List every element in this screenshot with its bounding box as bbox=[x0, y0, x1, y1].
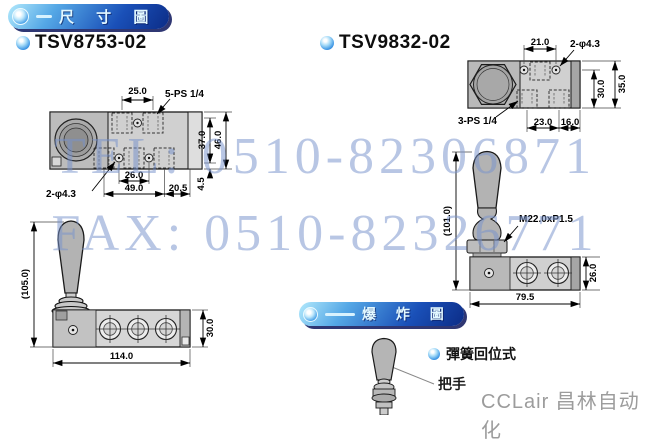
dim-79-5: 79.5 bbox=[516, 292, 535, 303]
handle-knob bbox=[372, 339, 396, 381]
spring-return-label: 彈簧回位式 bbox=[446, 344, 516, 364]
dim-30-right: 30.0 bbox=[596, 80, 607, 99]
tsv9832-side-view: (101.0) M22.0xP1.5 26.0 79.5 bbox=[442, 152, 600, 309]
technical-drawings-canvas: 25.0 5-PS 1/4 37.0 46.0 4.5 26.0 49.0 20… bbox=[0, 0, 650, 415]
badge-circle-icon bbox=[303, 307, 318, 322]
model-name-right: TSV9832-02 bbox=[339, 32, 451, 54]
dim-105: (105.0) bbox=[20, 269, 31, 299]
dim-35: 35.0 bbox=[617, 75, 628, 94]
dimension-section-header: 尺 寸 圖 bbox=[8, 4, 169, 29]
dim-20-5: 20.5 bbox=[169, 183, 188, 194]
side-ports bbox=[96, 315, 180, 343]
label-3ps: 3-PS 1/4 bbox=[458, 116, 497, 127]
lever-knob-right bbox=[473, 152, 501, 209]
model-title-tsv9832: TSV9832-02 bbox=[320, 32, 451, 54]
badge-dash-icon bbox=[36, 15, 52, 18]
handle-part-label: 把手 bbox=[438, 374, 466, 394]
label-2phi43-left: 2-φ4.3 bbox=[46, 189, 76, 200]
catalog-page: 25.0 5-PS 1/4 37.0 46.0 4.5 26.0 49.0 20… bbox=[0, 0, 650, 415]
badge-circle-icon bbox=[12, 8, 29, 25]
tsv9832-top-view: 21.0 2-φ4.3 30.0 35.0 3-PS 1/4 23.0 16.0 bbox=[458, 37, 628, 132]
brand-logo-text: CCLair 昌林自动化 bbox=[481, 385, 650, 443]
explosion-handle-drawing bbox=[372, 339, 434, 416]
label-thread: M22.0xP1.5 bbox=[519, 214, 573, 225]
dimension-section-title: 尺 寸 圖 bbox=[59, 6, 157, 27]
label-5ps: 5-PS 1/4 bbox=[165, 89, 204, 100]
bullet-icon bbox=[428, 348, 440, 360]
spring-return-note: 彈簧回位式 bbox=[428, 344, 516, 364]
bullet-icon bbox=[16, 36, 30, 50]
dim-26: 26.0 bbox=[125, 170, 144, 181]
dim-16: 16.0 bbox=[561, 117, 580, 128]
lever-knob bbox=[58, 221, 84, 293]
model-name-left: TSV8753-02 bbox=[35, 32, 147, 54]
dim-114: 114.0 bbox=[110, 351, 133, 362]
knob-top-circle bbox=[55, 119, 97, 161]
badge-dash-icon bbox=[325, 313, 355, 316]
dim-26-right: 26.0 bbox=[588, 264, 599, 283]
explosion-section-title: 爆 炸 圖 bbox=[362, 304, 452, 324]
tsv8753-top-view: 25.0 5-PS 1/4 37.0 46.0 4.5 26.0 49.0 20… bbox=[46, 86, 232, 200]
dim-4-5: 4.5 bbox=[196, 177, 207, 191]
dim-37: 37.0 bbox=[197, 131, 208, 150]
dim-101: (101.0) bbox=[442, 206, 453, 236]
dim-49: 49.0 bbox=[125, 183, 144, 194]
dim-46: 46.0 bbox=[213, 131, 224, 150]
dim-25: 25.0 bbox=[128, 86, 147, 97]
bullet-icon bbox=[320, 36, 334, 50]
model-title-tsv8753: TSV8753-02 bbox=[16, 32, 147, 54]
dim-23: 23.0 bbox=[534, 117, 553, 128]
tsv8753-side-view: (105.0) 30.0 114.0 bbox=[20, 221, 216, 367]
dim-30-left: 30.0 bbox=[205, 319, 216, 338]
dim-21: 21.0 bbox=[531, 37, 550, 48]
label-2phi43-right: 2-φ4.3 bbox=[570, 39, 600, 50]
explosion-section-header: 爆 炸 圖 bbox=[299, 302, 464, 326]
